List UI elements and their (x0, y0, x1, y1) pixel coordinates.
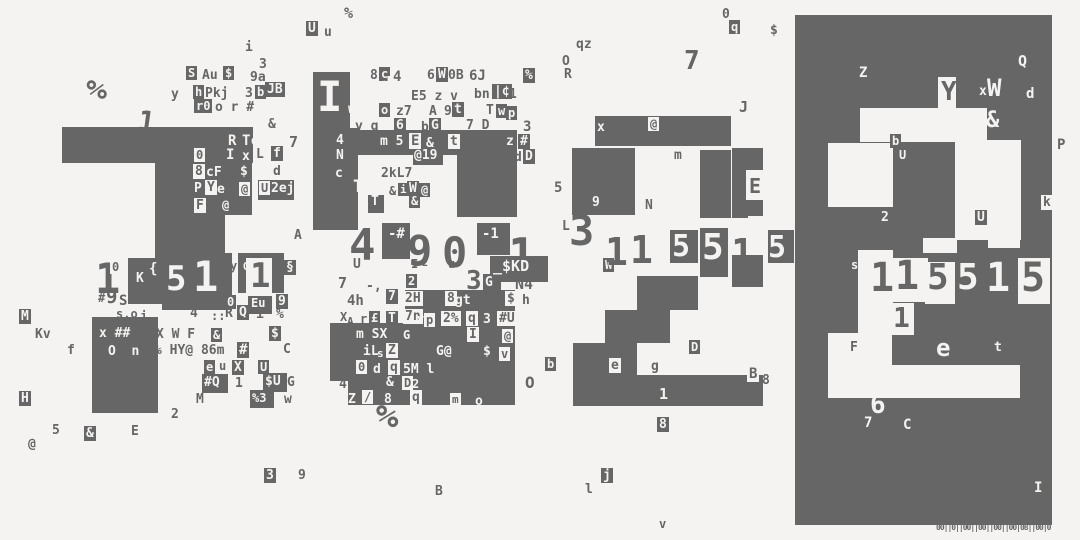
noise-char: i (256, 308, 264, 321)
noise-char: 2H (403, 291, 423, 306)
noise-char: T (486, 104, 494, 117)
noise-char: x (597, 121, 605, 134)
noise-char: E (749, 176, 761, 196)
noise-block (128, 258, 164, 304)
noise-cutout (955, 140, 1021, 240)
noise-char: o (379, 103, 390, 117)
noise-char: 0 (110, 260, 121, 274)
noise-char: m (674, 149, 682, 162)
captcha-digit: 1 (986, 258, 1010, 298)
noise-char: $ (483, 345, 491, 358)
noise-char: 2 (412, 378, 419, 390)
noise-char: 1 (509, 88, 517, 101)
noise-char: r0 (194, 99, 212, 113)
noise-char: 9 (444, 105, 452, 118)
noise-char: g (651, 360, 659, 373)
noise-char: Z (386, 343, 398, 358)
captcha-digit: 5 (1021, 258, 1045, 298)
noise-char: s.o (116, 308, 138, 320)
noise-captcha-field: %Uui3SAu$9ayhPkj3bJBr0o r #%&10q$qzOR7J5… (0, 0, 1080, 540)
noise-char: W (436, 67, 448, 82)
noise-char: 2ej (271, 182, 294, 195)
captcha-digit: 1 (870, 258, 894, 298)
noise-char: u (448, 258, 455, 270)
noise-char: y g (355, 120, 378, 133)
noise-char: 5 (554, 181, 562, 195)
noise-char: t (452, 102, 464, 117)
noise-char: L (256, 148, 264, 161)
noise-char: v (659, 518, 666, 530)
noise-char: 8 (370, 69, 378, 82)
noise-char: 0 (356, 360, 367, 374)
noise-char: 0 (194, 148, 205, 162)
noise-char: 3 (483, 313, 491, 326)
noise-char: -# (388, 227, 405, 241)
noise-char: qz (576, 38, 592, 51)
noise-char: 9 (298, 469, 306, 482)
noise-char: 2kL7 (381, 167, 412, 180)
noise-char: M (196, 393, 204, 406)
noise-char: 3 (523, 120, 531, 134)
noise-cutout (923, 238, 957, 253)
noise-char: @ (220, 198, 231, 212)
noise-char: wR (348, 103, 364, 116)
noise-char: 0B (448, 69, 464, 82)
noise-char: k (1041, 195, 1053, 210)
captcha-digit: W (987, 76, 1001, 100)
noise-char: z (504, 134, 516, 149)
noise-char: x (979, 85, 987, 98)
noise-char: 5 (52, 424, 60, 437)
noise-char: j (601, 468, 613, 483)
captcha-digit: 7 (684, 48, 700, 74)
noise-char: K (136, 272, 144, 285)
noise-cutout (828, 333, 892, 398)
noise-char: S (186, 66, 197, 80)
noise-char: I (467, 327, 479, 342)
noise-char: 3 (245, 87, 253, 100)
noise-char: Z (859, 66, 867, 80)
noise-char: # (518, 134, 530, 149)
noise-char: -1 (482, 227, 499, 241)
noise-char: m SX (356, 328, 387, 341)
captcha-digit: M (872, 170, 888, 196)
noise-char: U (897, 148, 908, 162)
noise-char: gt (455, 294, 471, 307)
noise-char: O (525, 375, 535, 391)
noise-char: b (421, 121, 429, 134)
noise-char: % (276, 308, 284, 321)
noise-char: & (986, 110, 999, 132)
noise-char: R (228, 134, 236, 148)
captcha-digit: 6 (870, 392, 886, 418)
noise-char: @ (419, 183, 430, 197)
noise-block (700, 150, 731, 218)
noise-char: U (306, 21, 318, 36)
noise-char: :: (211, 310, 225, 322)
noise-char: p (424, 313, 435, 327)
noise-char: Z (348, 393, 356, 406)
noise-char: G@ (436, 345, 452, 358)
noise-char: @ (28, 438, 36, 451)
noise-char: y (230, 260, 237, 272)
noise-char: cF (206, 166, 222, 179)
noise-char: { (149, 262, 157, 276)
noise-char: 3 (264, 468, 276, 483)
noise-block (748, 200, 763, 216)
noise-char: I (224, 147, 236, 163)
noise-char: $U (265, 375, 281, 388)
captcha-digit: 1 (893, 304, 910, 332)
noise-block (637, 276, 698, 310)
noise-char: 1 (659, 387, 668, 402)
noise-char: b (545, 357, 556, 371)
noise-char: 7 (864, 416, 872, 430)
noise-char: Au (202, 69, 218, 82)
noise-char: 2 (171, 408, 179, 421)
noise-char: @ (502, 329, 513, 343)
captcha-digit: 5 (957, 260, 979, 296)
noise-char: m 5 (380, 135, 403, 148)
noise-char: 2 (422, 259, 428, 269)
noise-char: A (429, 105, 437, 118)
noise-char: j (140, 310, 147, 322)
noise-char: I (1034, 481, 1042, 495)
noise-char: s (851, 259, 858, 271)
noise-char: 4 (393, 70, 401, 84)
noise-char: X (232, 360, 244, 375)
noise-char: C (903, 418, 911, 432)
noise-char: x ## (99, 327, 130, 340)
noise-char: Y (205, 180, 217, 195)
noise-char: / (362, 390, 373, 404)
noise-char: % (344, 6, 353, 21)
noise-char: $ (770, 24, 778, 37)
captcha-digit: 3 (569, 210, 594, 252)
noise-char: K (351, 88, 359, 101)
noise-char: bn (474, 88, 490, 101)
noise-char: $ (505, 291, 517, 306)
noise-cutout (860, 108, 987, 142)
noise-char: E5 z v (411, 90, 458, 103)
noise-char: v0 (431, 294, 445, 306)
noise-char: q (410, 390, 422, 405)
noise-char: 4 (339, 378, 347, 391)
captcha-digit: 3 (466, 268, 482, 294)
captcha-digit: Y (941, 79, 957, 105)
captcha-digit: 5 (768, 233, 786, 263)
noise-char: x (242, 150, 250, 163)
noise-char: O n (108, 345, 139, 358)
noise-char: 4 (336, 134, 344, 147)
noise-char: T (386, 311, 398, 326)
noise-char: £ (369, 311, 380, 325)
noise-char: R (225, 307, 233, 320)
captcha-digit: 1 (731, 234, 754, 272)
noise-char: JB (265, 82, 285, 97)
noise-char: 9 (106, 288, 117, 307)
noise-char: N (336, 149, 344, 162)
noise-char: A (347, 316, 354, 327)
noise-char: q (388, 360, 400, 375)
noise-char: p (506, 106, 517, 120)
noise-char: 2% (441, 311, 461, 326)
noise-char: d (379, 76, 392, 98)
noise-char: R (564, 68, 572, 81)
noise-char: 7 (338, 276, 347, 291)
noise-char: 9a (250, 71, 266, 84)
noise-cutout (892, 365, 1020, 398)
noise-char: v (499, 347, 510, 361)
noise-char: 7 (386, 289, 398, 304)
noise-char: o (475, 395, 483, 408)
captcha-digit: 1 (630, 231, 653, 269)
captcha-digit: % (84, 74, 109, 108)
noise-char: P (1057, 138, 1065, 152)
noise-char: y (171, 88, 179, 101)
noise-cutout (858, 303, 888, 333)
noise-char: B (435, 485, 443, 498)
noise-char: -, (366, 280, 382, 293)
noise-char: & (211, 328, 222, 342)
noise-char: #Q (204, 376, 220, 389)
noise-char: % (523, 68, 535, 83)
binary-pattern-text: 00||0||00||00||00||00|08||00|0 (936, 524, 1051, 532)
noise-char: 2 (210, 200, 218, 213)
noise-char: X W F (156, 328, 195, 341)
noise-char: & (409, 194, 420, 208)
noise-char: & (386, 376, 394, 389)
noise-char: 6 (394, 118, 406, 133)
noise-char: Tc (242, 134, 259, 148)
noise-char: 6J (469, 69, 486, 83)
noise-char: t (448, 134, 460, 149)
noise-char: E (409, 133, 421, 149)
noise-char: c (335, 167, 343, 180)
noise-char: D (689, 340, 700, 354)
noise-char: u (219, 360, 226, 372)
noise-char: @ (648, 117, 659, 131)
noise-char: o r # (215, 101, 254, 114)
noise-char: 2 (406, 274, 417, 288)
noise-char: e (609, 358, 621, 373)
noise-char: r (360, 313, 367, 325)
noise-char: 4h (347, 294, 364, 308)
noise-char: b (890, 134, 901, 148)
noise-char: I (411, 258, 418, 270)
noise-char: 5M l (403, 363, 434, 376)
captcha-digit: 1 (250, 259, 270, 293)
noise-char: 5 (344, 193, 352, 206)
noise-char: w (284, 393, 292, 406)
noise-char: U (975, 210, 987, 225)
captcha-digit: I (317, 76, 342, 118)
noise-char: & (268, 118, 276, 131)
noise-char: 2 (881, 211, 889, 224)
noise-char: d (1026, 87, 1034, 101)
noise-char: B (747, 366, 759, 382)
noise-char: Kv (35, 328, 51, 341)
noise-char: E (131, 425, 139, 438)
noise-char: G (403, 329, 410, 341)
captcha-digit: e (936, 336, 950, 360)
noise-char: N4 (515, 277, 533, 292)
noise-block (572, 148, 635, 215)
noise-char: N (645, 199, 653, 212)
noise-char: Q (219, 280, 229, 296)
noise-block (605, 310, 670, 343)
noise-char: $ (238, 164, 250, 179)
noise-char: % HY@ 86m (154, 344, 224, 357)
noise-char: Q (237, 305, 249, 320)
captcha-digit: 5 (672, 232, 690, 262)
noise-char: d (373, 363, 381, 376)
noise-block (595, 116, 731, 146)
noise-char: q (729, 20, 740, 34)
noise-char: s (377, 348, 384, 359)
noise-char: U (353, 258, 361, 271)
noise-char: u (324, 26, 332, 39)
noise-char: t (994, 341, 1002, 354)
noise-char: # (237, 342, 249, 358)
noise-char: m (450, 393, 461, 406)
noise-char: 8 (193, 164, 205, 179)
noise-char: z7 (396, 105, 412, 118)
noise-char: i (245, 41, 253, 54)
noise-char: C (283, 343, 291, 356)
noise-char: G (287, 376, 295, 389)
noise-char: q (466, 311, 478, 326)
captcha-digit: 5 (702, 230, 724, 266)
noise-char: h (193, 85, 204, 99)
noise-char: 6 (427, 69, 435, 82)
noise-char: 4 (190, 307, 198, 320)
captcha-digit: 1 (605, 233, 628, 271)
noise-char: l (585, 483, 593, 496)
noise-char: e (204, 360, 215, 374)
noise-char: 1 (235, 377, 243, 390)
noise-char: U (258, 360, 269, 374)
noise-char: f (271, 146, 283, 161)
noise-char: d (514, 151, 522, 164)
noise-char: S (119, 294, 127, 308)
noise-char: d (271, 164, 283, 179)
noise-char: M (19, 309, 31, 324)
noise-char: G (429, 118, 441, 133)
noise-char: e (217, 183, 225, 196)
noise-char: Q (1018, 54, 1027, 69)
noise-char: A (292, 228, 304, 243)
noise-char: 7 (289, 135, 298, 150)
noise-char: & (387, 184, 398, 198)
noise-char: G (485, 276, 493, 289)
noise-char: 8 (657, 417, 669, 432)
noise-char: P (194, 182, 202, 195)
captcha-digit: 5 (927, 260, 949, 296)
noise-char: $ (223, 66, 234, 80)
noise-char: H (19, 391, 31, 406)
noise-cutout (988, 238, 1020, 248)
noise-char: F (194, 198, 206, 213)
noise-char: & (84, 426, 96, 441)
captcha-digit: 5 (166, 262, 186, 296)
noise-char: 7 D (466, 119, 489, 132)
noise-char: f (67, 344, 75, 357)
noise-char: D (523, 149, 535, 164)
noise-char: @ (239, 182, 250, 196)
noise-char: F (850, 341, 858, 354)
noise-char: 8 (762, 374, 770, 387)
captcha-digit: 1 (895, 256, 919, 296)
noise-char: %3 (252, 392, 266, 404)
noise-char: 3Z (232, 200, 248, 213)
noise-char: @19 (414, 149, 437, 162)
noise-char: $ (269, 326, 281, 341)
noise-char: T (371, 195, 379, 208)
noise-char: # (98, 292, 105, 304)
noise-char: #U (497, 311, 517, 326)
captcha-digit: 1 (193, 256, 218, 298)
noise-char: _$KD (493, 259, 529, 274)
noise-char: J (739, 100, 748, 115)
noise-char: § (284, 260, 296, 275)
noise-char: U (259, 181, 270, 195)
noise-char: h (522, 294, 530, 307)
noise-block (573, 343, 637, 375)
